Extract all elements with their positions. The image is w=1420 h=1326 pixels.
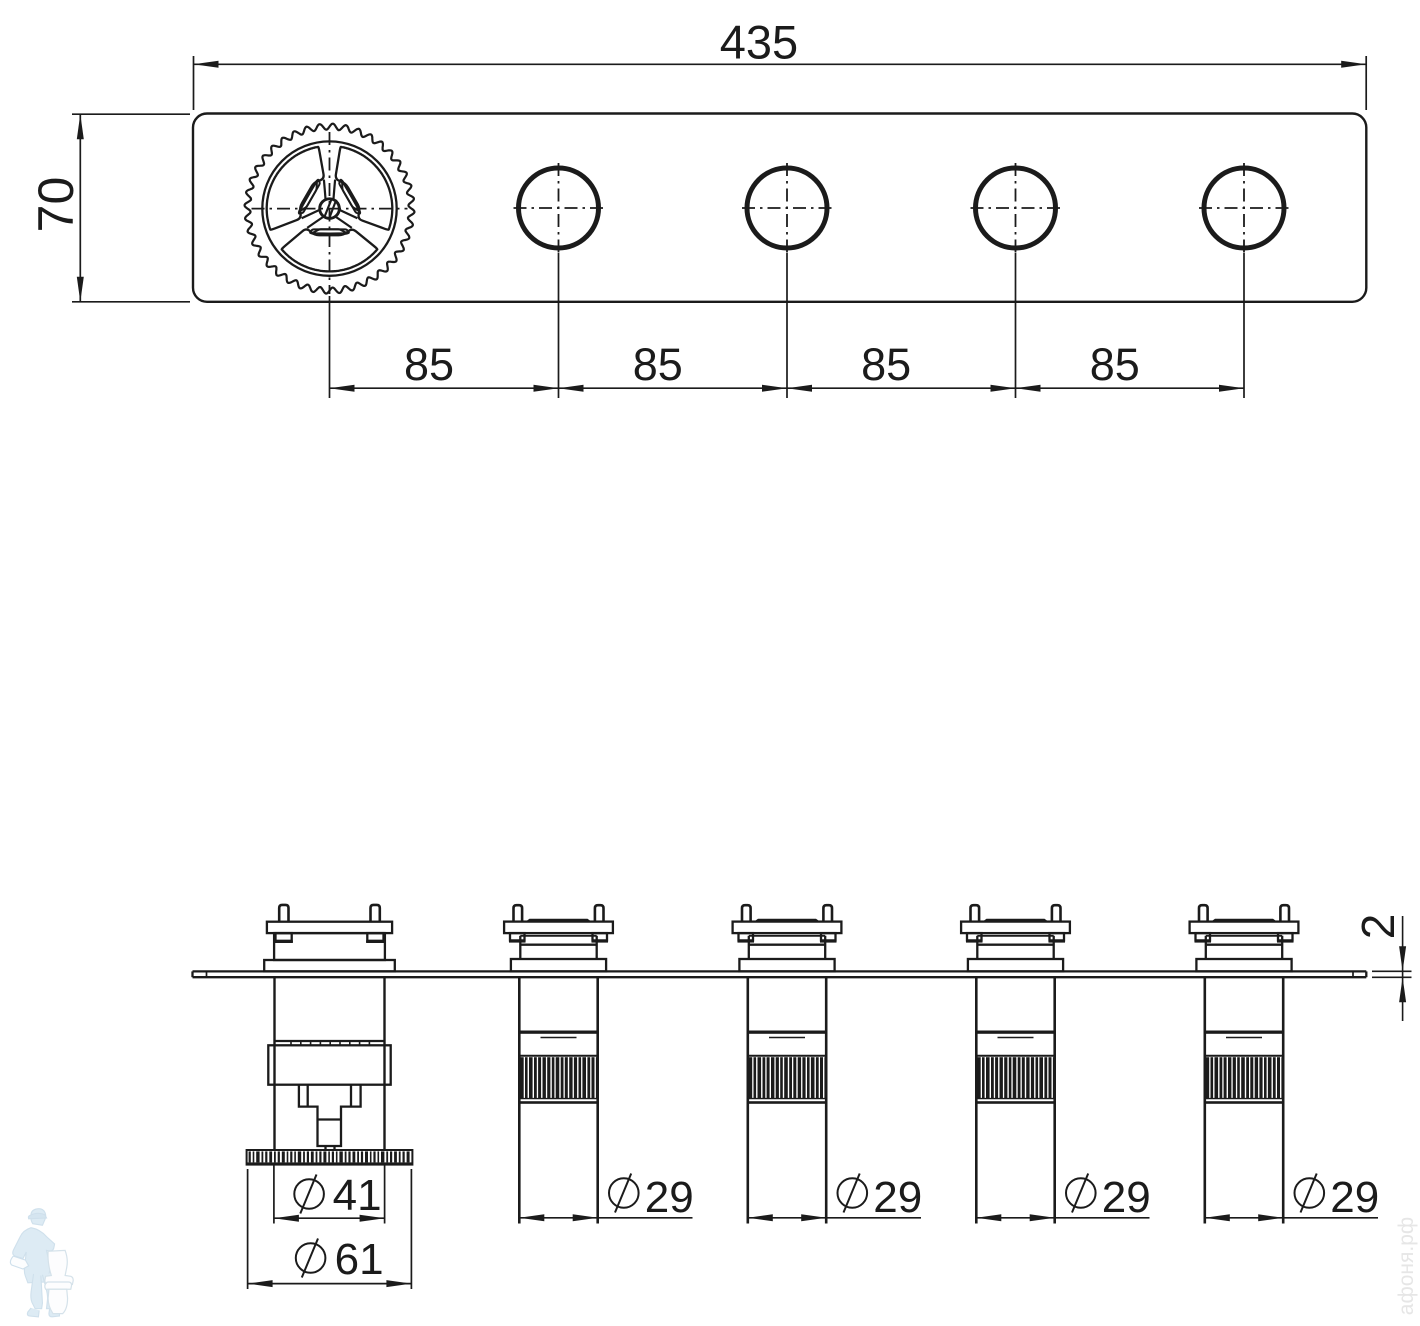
svg-text:85: 85 — [1090, 339, 1140, 390]
svg-text:85: 85 — [633, 339, 683, 390]
svg-text:29: 29 — [873, 1173, 922, 1222]
svg-text:70: 70 — [28, 177, 84, 233]
svg-text:85: 85 — [404, 339, 454, 390]
svg-text:85: 85 — [861, 339, 911, 390]
svg-text:435: 435 — [720, 16, 798, 69]
svg-text:29: 29 — [1102, 1173, 1151, 1222]
svg-text:2: 2 — [1352, 914, 1404, 940]
svg-text:афоня.рф: афоня.рф — [1395, 1217, 1418, 1315]
svg-text:41: 41 — [333, 1171, 382, 1220]
svg-text:61: 61 — [335, 1235, 384, 1284]
svg-text:29: 29 — [645, 1173, 694, 1222]
svg-text:29: 29 — [1330, 1173, 1379, 1222]
